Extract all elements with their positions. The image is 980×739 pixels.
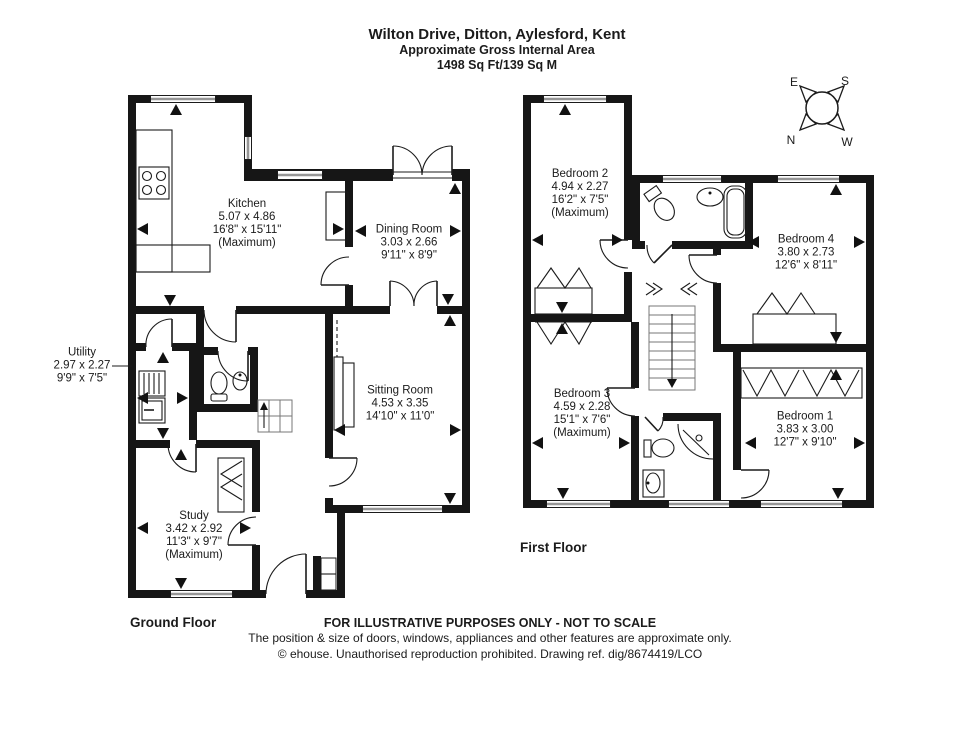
compass-north-label: N <box>787 133 796 147</box>
bedroom4-wardrobe-icon <box>753 293 836 344</box>
ground-floor-label: Ground Floor <box>130 615 216 630</box>
wc-toilet-icon <box>211 372 227 401</box>
door-bathroom-icon <box>647 245 672 263</box>
room-label-bedroom4: Bedroom 4 3.80 x 2.73 12'6" x 8'11" <box>775 234 837 273</box>
compass-west-label: W <box>841 135 852 149</box>
porch-sidelight <box>321 558 336 590</box>
bathroom-basin-icon <box>697 188 723 206</box>
compass-south-label: S <box>841 74 849 88</box>
door-shower-room-icon <box>645 417 663 431</box>
room-label-study: Study 3.42 x 2.92 11'3" x 9'7" (Maximum) <box>165 510 223 562</box>
first-floor-fixtures <box>535 184 862 497</box>
floorplan-page: Wilton Drive, Ditton, Aylesford, Kent Ap… <box>0 0 980 739</box>
copyright-line: © ehouse. Unauthorised reproduction proh… <box>248 646 731 662</box>
staircase-ground-icon <box>258 400 292 432</box>
disclaimer-line1: FOR ILLUSTRATIVE PURPOSES ONLY - NOT TO … <box>248 616 731 630</box>
bathtub-icon <box>724 186 747 238</box>
room-label-kitchen: Kitchen 5.07 x 4.86 16'8" x 15'11" (Maxi… <box>213 198 282 250</box>
room-label-bedroom3: Bedroom 3 4.59 x 2.28 15'1" x 7'6" (Maxi… <box>553 388 611 440</box>
sitting-room-unit <box>334 320 354 430</box>
bathroom-toilet-icon <box>643 184 678 224</box>
page-title: Wilton Drive, Ditton, Aylesford, Kent Ap… <box>368 26 625 73</box>
loft-chevrons-icon <box>646 283 697 295</box>
room-label-bedroom2: Bedroom 2 4.94 x 2.27 16'2" x 7'5" (Maxi… <box>551 168 609 220</box>
door-bedroom1-icon <box>741 470 769 498</box>
first-floor-label: First Floor <box>520 540 587 555</box>
compass-east-label: E <box>790 75 798 89</box>
study-wardrobe-icon <box>218 458 244 512</box>
bedroom1-wardrobe-icon <box>741 368 862 398</box>
compass-icon <box>800 86 844 130</box>
front-door-icon <box>266 554 306 594</box>
door-bedroom4-icon <box>689 255 717 283</box>
room-label-utility: Utility 2.97 x 2.27 9'9" x 7'5" <box>54 347 111 386</box>
door-sitting-room-icon <box>329 458 357 486</box>
door-utility-icon <box>146 319 172 347</box>
room-label-dining: Dining Room 3.03 x 2.66 9'11" x 8'9" <box>376 224 442 263</box>
door-kitchen-dining-icon <box>321 257 349 285</box>
area-value: 1498 Sq Ft/139 Sq M <box>368 58 625 73</box>
cooker-hob-icon <box>139 167 169 199</box>
shower-basin-icon <box>643 470 664 497</box>
address-title: Wilton Drive, Ditton, Aylesford, Kent <box>368 26 625 43</box>
area-subtitle: Approximate Gross Internal Area <box>368 43 625 58</box>
room-label-sitting: Sitting Room 4.53 x 3.35 14'10" x 11'0" <box>366 385 435 424</box>
staircase-first-icon <box>649 306 695 390</box>
disclaimer-line2: The position & size of doors, windows, a… <box>248 630 731 646</box>
corner-shower-icon <box>678 424 713 459</box>
door-bedroom3-icon <box>607 388 635 416</box>
door-wc-icon <box>218 351 248 381</box>
room-label-bedroom1: Bedroom 1 3.83 x 3.00 12'7" x 9'10" <box>773 411 836 450</box>
door-kitchen-hall-icon <box>204 310 236 342</box>
shower-toilet-icon <box>644 439 674 457</box>
french-doors-dining-sitting-icon <box>390 281 437 306</box>
disclaimer-block: FOR ILLUSTRATIVE PURPOSES ONLY - NOT TO … <box>248 616 731 662</box>
